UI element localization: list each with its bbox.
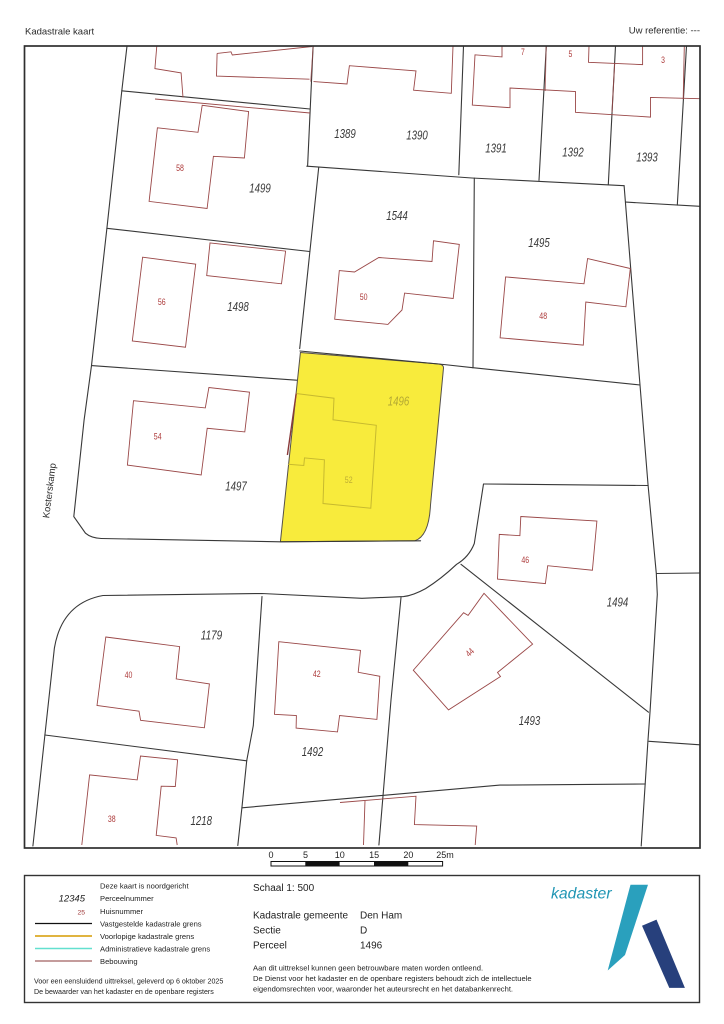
svg-text:eigendomsrechten voor, waarond: eigendomsrechten voor, waaronder het aut…	[253, 985, 513, 994]
svg-text:Perceelnummer: Perceelnummer	[100, 894, 154, 903]
svg-text:1498: 1498	[227, 299, 249, 314]
svg-text:1496: 1496	[388, 394, 410, 409]
svg-text:D: D	[360, 926, 367, 937]
svg-text:42: 42	[313, 669, 321, 679]
svg-text:10: 10	[335, 850, 345, 860]
svg-text:Den Ham: Den Ham	[360, 911, 402, 922]
svg-text:50: 50	[360, 292, 368, 302]
svg-text:5: 5	[569, 49, 573, 59]
svg-text:1494: 1494	[607, 595, 629, 610]
svg-text:kadaster: kadaster	[551, 886, 612, 903]
svg-text:De Dienst voor het kadaster en: De Dienst voor het kadaster en de openba…	[253, 974, 532, 983]
svg-text:54: 54	[154, 432, 162, 442]
svg-text:Sectie: Sectie	[253, 926, 281, 937]
svg-text:1179: 1179	[201, 628, 223, 643]
svg-text:Voor een eensluidend uittrekse: Voor een eensluidend uittreksel, gelever…	[34, 978, 223, 986]
svg-text:Aan dit uittreksel kunnen geen: Aan dit uittreksel kunnen geen betrouwba…	[253, 964, 483, 973]
svg-text:52: 52	[345, 475, 353, 485]
svg-text:Vastgestelde kadastrale grens: Vastgestelde kadastrale grens	[100, 920, 202, 929]
svg-text:12345: 12345	[59, 894, 86, 905]
svg-text:1497: 1497	[225, 479, 247, 494]
svg-text:1492: 1492	[302, 744, 324, 759]
svg-text:Uw referentie: ---: Uw referentie: ---	[629, 26, 700, 37]
svg-text:46: 46	[521, 555, 529, 565]
svg-text:25: 25	[77, 910, 85, 917]
svg-text:1391: 1391	[485, 141, 507, 156]
svg-text:5: 5	[303, 850, 308, 860]
svg-text:Administratieve kadastrale gre: Administratieve kadastrale grens	[100, 945, 210, 954]
svg-text:1393: 1393	[636, 150, 658, 165]
svg-text:48: 48	[539, 311, 547, 321]
svg-text:56: 56	[158, 297, 166, 307]
svg-text:3: 3	[661, 55, 665, 65]
svg-text:Deze kaart is noordgericht: Deze kaart is noordgericht	[100, 882, 190, 891]
svg-text:1392: 1392	[562, 145, 584, 160]
svg-text:38: 38	[108, 814, 116, 824]
svg-text:Bebouwing: Bebouwing	[100, 957, 138, 966]
svg-text:1390: 1390	[406, 128, 428, 143]
svg-text:7: 7	[521, 47, 525, 57]
svg-text:1495: 1495	[528, 235, 550, 250]
svg-text:Perceel: Perceel	[253, 941, 287, 952]
svg-text:Voorlopige kadastrale grens: Voorlopige kadastrale grens	[100, 932, 194, 941]
svg-text:1544: 1544	[386, 208, 408, 223]
svg-text:58: 58	[176, 163, 184, 173]
svg-text:0: 0	[268, 850, 273, 860]
svg-text:1496: 1496	[360, 941, 383, 952]
svg-text:De bewaarder van het kadaster: De bewaarder van het kadaster en de open…	[34, 988, 214, 996]
svg-text:40: 40	[125, 670, 133, 680]
svg-text:20: 20	[403, 850, 413, 860]
svg-text:Kadastrale gemeente: Kadastrale gemeente	[253, 911, 349, 922]
svg-text:1493: 1493	[519, 713, 541, 728]
svg-text:Schaal 1: 500: Schaal 1: 500	[253, 883, 315, 894]
svg-text:15: 15	[369, 850, 379, 860]
svg-text:1499: 1499	[249, 181, 271, 196]
svg-text:25m: 25m	[436, 850, 454, 860]
svg-text:Huisnummer: Huisnummer	[100, 907, 144, 916]
svg-text:1218: 1218	[191, 813, 213, 828]
svg-text:Kadastrale kaart: Kadastrale kaart	[25, 27, 95, 38]
svg-text:1389: 1389	[334, 126, 356, 141]
